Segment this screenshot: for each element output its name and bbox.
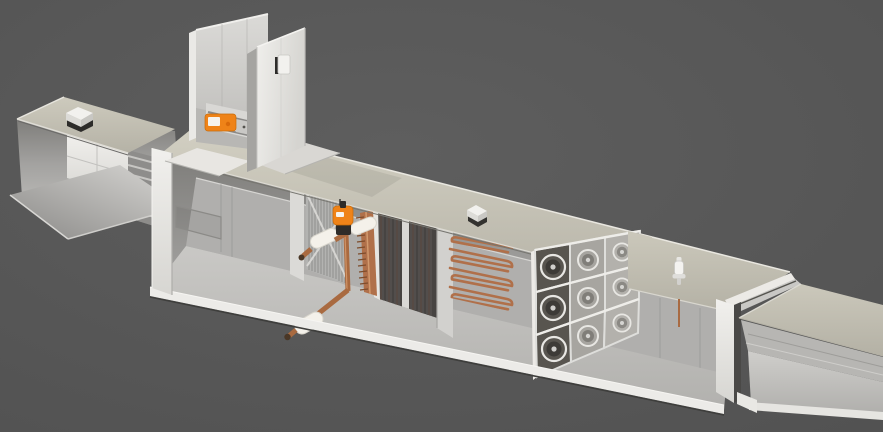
- wall-pilaster: [290, 186, 304, 281]
- tower-left-edge: [189, 30, 196, 141]
- tower-front-panel: [257, 28, 305, 168]
- ahu-render: Air handling unit — cutaway 3D render: [0, 0, 883, 432]
- coil-valve-actuator: [333, 201, 353, 235]
- tower-sensor: [275, 55, 290, 74]
- front-corner-post: [152, 148, 172, 295]
- end-frame-post: [716, 299, 734, 403]
- ahu-cutaway-scene: Air handling unit — cutaway 3D render: [0, 0, 883, 432]
